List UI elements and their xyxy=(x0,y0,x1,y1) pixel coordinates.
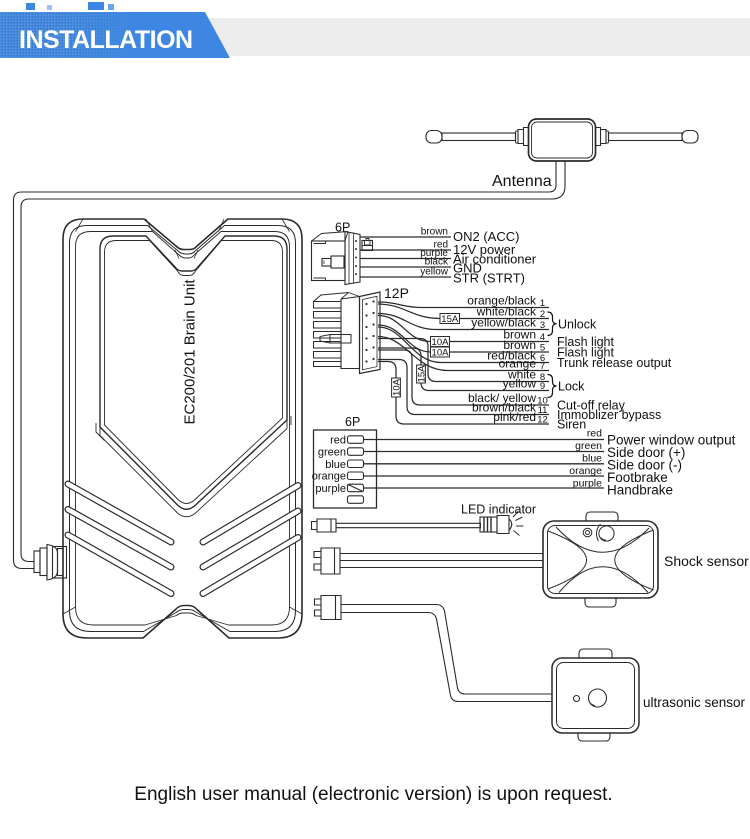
svg-text:ultrasonic sensor: ultrasonic sensor xyxy=(643,695,746,710)
svg-text:yellow: yellow xyxy=(420,267,449,278)
svg-text:Antenna: Antenna xyxy=(492,173,552,190)
svg-text:9: 9 xyxy=(540,381,545,392)
svg-text:Lock: Lock xyxy=(558,380,585,394)
svg-text:12: 12 xyxy=(537,415,548,426)
svg-text:15A: 15A xyxy=(441,314,459,325)
svg-text:blue: blue xyxy=(325,459,346,471)
svg-text:English user manual (electroni: English user manual (electronic version)… xyxy=(134,784,612,805)
svg-text:LED indicator: LED indicator xyxy=(461,503,536,517)
svg-text:5: 5 xyxy=(540,343,545,354)
svg-text:blue: blue xyxy=(582,453,602,465)
svg-text:7: 7 xyxy=(540,361,545,372)
svg-text:red: red xyxy=(587,428,602,440)
svg-text:red: red xyxy=(330,435,346,447)
svg-text:Trunk release output: Trunk release output xyxy=(557,356,672,370)
svg-text:EC200/201 Brain Unit: EC200/201 Brain Unit xyxy=(182,279,199,425)
svg-text:Siren: Siren xyxy=(557,418,586,432)
svg-text:10A: 10A xyxy=(392,378,403,396)
svg-text:2: 2 xyxy=(540,309,545,320)
svg-text:STR (STRT): STR (STRT) xyxy=(453,271,525,286)
svg-text:yellow: yellow xyxy=(503,377,537,391)
svg-text:4: 4 xyxy=(540,332,545,343)
svg-text:purple: purple xyxy=(315,483,346,495)
svg-text:10A: 10A xyxy=(432,337,450,348)
svg-text:15A: 15A xyxy=(417,365,428,383)
svg-text:6P: 6P xyxy=(345,415,360,429)
svg-text:Shock sensor: Shock sensor xyxy=(664,553,749,569)
svg-text:orange: orange xyxy=(312,471,346,483)
svg-text:purple: purple xyxy=(573,478,602,490)
svg-text:orange: orange xyxy=(569,465,602,477)
svg-text:pink/red: pink/red xyxy=(493,410,536,424)
svg-text:green: green xyxy=(575,440,602,452)
svg-text:3: 3 xyxy=(540,320,545,331)
svg-text:10A: 10A xyxy=(432,348,450,359)
svg-text:Unlock: Unlock xyxy=(558,318,597,332)
svg-text:1: 1 xyxy=(540,298,545,309)
svg-text:Handbrake: Handbrake xyxy=(607,483,673,498)
svg-text:green: green xyxy=(318,447,346,459)
svg-text:6P: 6P xyxy=(335,221,350,235)
svg-text:brown: brown xyxy=(421,227,448,238)
svg-text:12P: 12P xyxy=(384,285,409,301)
